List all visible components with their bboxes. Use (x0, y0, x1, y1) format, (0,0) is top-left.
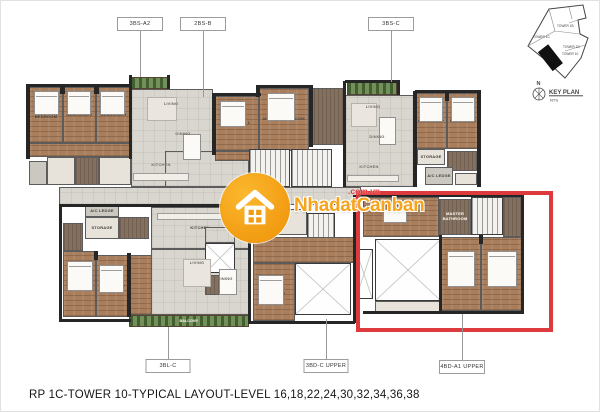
room-tag: LIVING (353, 101, 393, 113)
plan-title: RP 1C-TOWER 10-TYPICAL LAYOUT-LEVEL 16,1… (29, 389, 420, 401)
room-storage: STORAGE (417, 149, 445, 165)
floor-plan-image: BALCONYKITCHENMASTER BEDROOMBEDROOM 2BED… (0, 0, 600, 412)
wall (213, 93, 261, 96)
keyplan-title: KEY PLAN (549, 90, 579, 96)
bed-furniture (451, 97, 475, 122)
counter-furniture (347, 175, 399, 182)
keyplan-tower-label: TOWER 10 (562, 52, 578, 56)
north-label: N (537, 81, 541, 87)
room (455, 173, 477, 185)
room-label: DINING (159, 127, 207, 141)
unit-label-3bs-c: 3BS-C (368, 17, 414, 31)
bed-furniture (258, 275, 284, 305)
wall (61, 319, 131, 322)
room-label: LIVING (147, 97, 195, 111)
keyplan-tower-label: TOWER 1B (557, 24, 574, 28)
leader-line (140, 31, 141, 77)
wall (413, 91, 417, 187)
room (47, 157, 75, 185)
room-label: A/C LEDGE (86, 206, 118, 216)
wall (343, 81, 346, 187)
leader-line (203, 31, 204, 97)
watermark-brand-text: NhadatCanban (294, 195, 424, 217)
room-label: A/C LEDGE (426, 168, 452, 184)
wall (212, 93, 216, 155)
room-tag: DINING (159, 127, 207, 141)
room-a-c-ledge: A/C LEDGE (425, 167, 453, 185)
bed-furniture (100, 91, 125, 115)
wall (127, 253, 131, 317)
room-balcony: BALCONY (129, 315, 249, 327)
room-label: DINING (205, 273, 245, 285)
room-label: LIVING (353, 101, 393, 113)
room-tag: LIVING (177, 257, 217, 269)
room (131, 77, 169, 89)
wall (309, 85, 313, 147)
wall (26, 84, 132, 87)
wall (129, 75, 132, 159)
watermark-house-icon (220, 173, 290, 243)
wall (397, 80, 400, 95)
room-tag: LIVING (147, 97, 195, 111)
room-tag: DINING (205, 273, 245, 285)
room-label: BALCONY (130, 316, 248, 326)
wall (59, 204, 62, 322)
bed-furniture (220, 101, 246, 127)
watermark-domain-text: .com.vn (348, 186, 380, 196)
room (295, 263, 351, 315)
unit-label-3bd-c-upper: 3BD-C UPPER (304, 359, 349, 373)
wall (445, 91, 449, 101)
leader-line (326, 319, 327, 359)
room-storage: STORAGE (85, 217, 119, 239)
unit-label-2bs-b: 2BS-B (180, 17, 226, 31)
room (29, 161, 47, 185)
unit-label-3bs-a2: 3BS-A2 (117, 17, 163, 31)
bed-furniture (99, 265, 124, 293)
wall (94, 85, 99, 94)
wall (251, 321, 355, 324)
bed-furniture (34, 91, 59, 115)
wall (477, 90, 481, 187)
key-plan: TOWER 1B TOWER 1C TOWER 1D TOWER 10 N KE… (519, 1, 599, 107)
wall (26, 84, 30, 159)
bed-furniture (67, 261, 93, 291)
bed-furniture (267, 93, 295, 121)
keyplan-tower-label: TOWER 1D (563, 45, 580, 49)
room-label: STORAGE (418, 150, 444, 164)
room (128, 255, 152, 315)
house-icon (234, 187, 276, 229)
wall (60, 85, 65, 94)
room-tag: DINING (357, 131, 397, 143)
keyplan-tower-label: TOWER 1C (533, 35, 550, 39)
keyplan-scale: NTS (550, 98, 558, 103)
bed-furniture (67, 91, 91, 115)
wall (257, 85, 313, 88)
unit-label-4bd-a1-upper: 4BD-A1 UPPER (439, 360, 485, 374)
room (99, 157, 131, 185)
room (253, 237, 355, 263)
leader-line (391, 31, 392, 82)
room-tag: KITCHEN (349, 161, 389, 173)
room (29, 143, 131, 157)
room (347, 82, 397, 95)
wall (256, 85, 260, 97)
room-label: KITCHEN (137, 159, 185, 171)
room (75, 157, 99, 185)
wall (167, 75, 170, 89)
bed-furniture (419, 97, 443, 122)
room (309, 88, 345, 145)
room (63, 223, 83, 251)
room-tag: KITCHEN (137, 159, 185, 171)
room-label: STORAGE (86, 218, 118, 238)
counter-furniture (133, 173, 189, 181)
room-label: LIVING (177, 257, 217, 269)
leader-line (168, 327, 169, 359)
leader-line (462, 314, 463, 360)
room-label: KITCHEN (349, 161, 389, 173)
counter-furniture (157, 213, 223, 220)
unit-label-3bl-c: 3BL-C (146, 359, 191, 373)
wall (94, 251, 98, 260)
room (119, 217, 149, 239)
room (291, 149, 332, 187)
room-label: DINING (357, 131, 397, 143)
